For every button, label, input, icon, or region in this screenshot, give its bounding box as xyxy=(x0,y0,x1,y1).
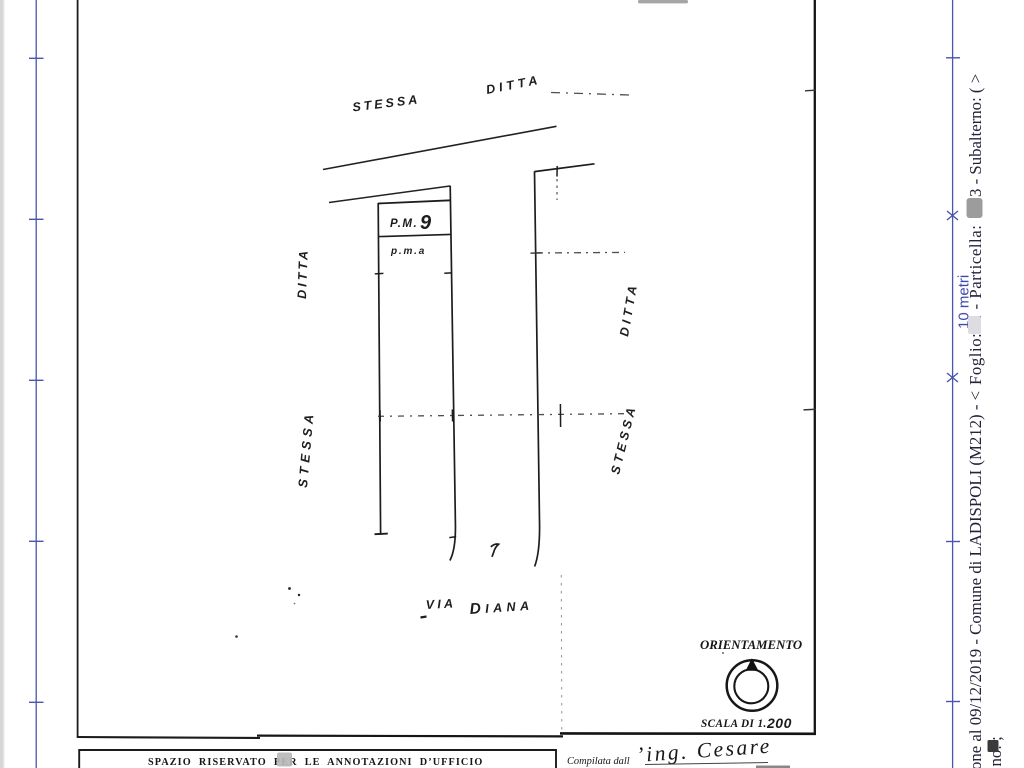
svg-text:DITTA: DITTA xyxy=(295,248,311,299)
svg-text:Foglio: 2. - Particella:: Foglio: 2. - Particella: xyxy=(966,225,985,385)
svg-text:3 - Subalterno: ( >: 3 - Subalterno: ( > xyxy=(966,74,985,197)
svg-text:one al 09/12/2019 - Comune di: one al 09/12/2019 - Comune di LADISPOLI … xyxy=(966,391,985,768)
svg-text:SCALA DI 1.: SCALA DI 1. xyxy=(701,718,767,730)
svg-text:Compilata dall: Compilata dall xyxy=(567,756,630,767)
svg-text:SPAZIO RISERVATO PER LE ANNOTA: SPAZIO RISERVATO PER LE ANNOTAZIONI D’UF… xyxy=(148,757,483,768)
svg-text:ORIENTAMENTO: ORIENTAMENTO xyxy=(700,638,802,652)
svg-text:9: 9 xyxy=(420,212,432,234)
svg-text:P.M.: P.M. xyxy=(390,218,418,230)
svg-text:VIA: VIA xyxy=(425,596,456,612)
svg-text:p.m.a: p.m.a xyxy=(390,246,426,257)
svg-text:200: 200 xyxy=(766,715,792,731)
